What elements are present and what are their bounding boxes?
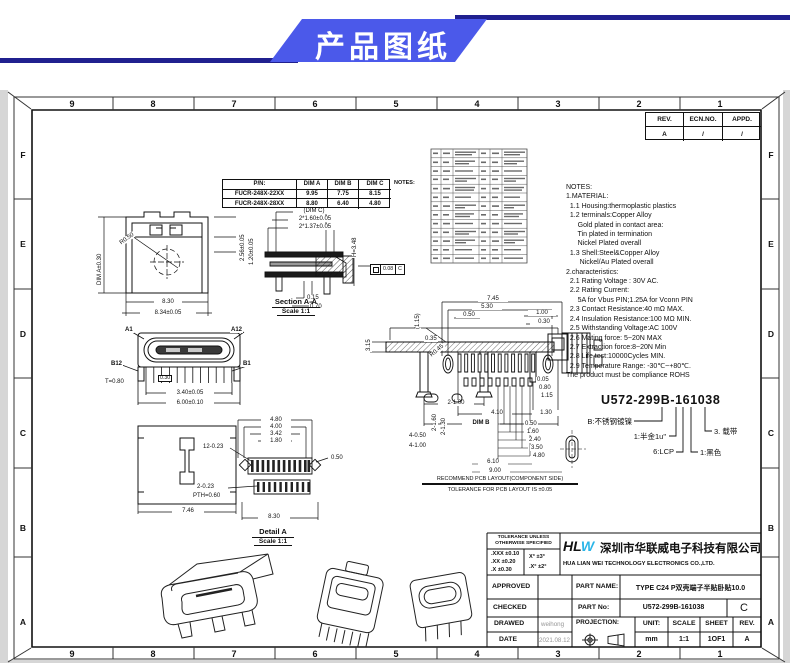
dim-pcb-115p: (1.15) xyxy=(415,312,421,330)
zone-row-left: A xyxy=(16,617,30,627)
dim-pcb-005: 0.05 xyxy=(536,377,550,383)
tolerance-deg2: .X° ±2° xyxy=(529,564,547,570)
part-rev-letter: C xyxy=(727,602,761,614)
dim-detail-t3: 3.42 xyxy=(261,431,291,437)
company-logo: HLW xyxy=(563,538,594,554)
pcb-side-strip-drawing xyxy=(552,328,612,388)
logo-w: W xyxy=(581,538,594,554)
dim-front-w1: 8.30 xyxy=(154,299,182,305)
pcb-pad-detail-drawing xyxy=(552,428,612,478)
dim-b-header: DIM B xyxy=(328,180,359,190)
pin-label-a12: A12 xyxy=(230,327,243,333)
dim-pcb-b240: 2.40 xyxy=(528,437,542,443)
callout-lcp: 6:LCP xyxy=(638,447,674,456)
rev-value: A xyxy=(733,636,761,643)
pin-label-b12: B12 xyxy=(110,361,123,367)
ecn-header: ECN.NO. xyxy=(684,113,723,127)
face-view-drawing xyxy=(108,325,258,423)
scale-label: SCALE xyxy=(668,620,700,627)
pn-cell: 8.15 xyxy=(359,190,391,200)
dim-detail-t2: 4.00 xyxy=(261,424,291,430)
gdt-datum: C xyxy=(396,265,404,274)
pcb-caption: RECOMMEND PCB LAYOUT(COMPONENT SIDE) xyxy=(422,476,578,485)
unit-value: mm xyxy=(635,636,668,643)
dim-section-c: (DIM C) xyxy=(293,208,335,214)
pcb-tolerance-note: TOLERANCE FOR PCB LAYOUT IS ±0.05 xyxy=(422,487,578,493)
callout-tape: 3. 载带 xyxy=(714,426,737,437)
gdt-symbol-icon xyxy=(371,265,381,274)
dim-pcb-900: 9.00 xyxy=(480,468,510,474)
zone-col-top: 4 xyxy=(467,99,487,109)
dim-top-746: 7.46 xyxy=(172,508,204,514)
dim-section-2: 2*1.37±0.05 xyxy=(288,224,342,230)
dim-detail-t4: 1.80 xyxy=(261,438,291,444)
dim-detail-t1: 4.80 xyxy=(261,417,291,423)
dim-pcb-530: 5.30 xyxy=(472,304,502,310)
dim-face-600: 6.00±0.10 xyxy=(166,400,214,406)
pn-header: P/N: xyxy=(223,180,297,190)
pn-cell: 7.75 xyxy=(328,190,359,200)
section-scale: Scale 1:1 xyxy=(277,308,315,316)
dim-pcb-100: 1.00 xyxy=(528,310,556,316)
zone-row-right: F xyxy=(764,150,778,160)
zone-col-top: 9 xyxy=(62,99,82,109)
zone-row-left: E xyxy=(16,239,30,249)
projection-label: PROJECTION: xyxy=(576,619,619,626)
dim-side-315: 3.15 xyxy=(366,338,372,352)
dim-front-a: DIM A±0.30 xyxy=(97,253,103,286)
part-no-value: U572-299B-161038 xyxy=(620,604,727,611)
logo-hl: HL xyxy=(563,538,581,554)
gdt-value: 0.08 xyxy=(381,265,396,274)
zone-row-right: A xyxy=(764,617,778,627)
part-name-label: PART NAME: xyxy=(576,583,618,590)
pn-cell: 9.95 xyxy=(297,190,328,200)
dim-pcb-115: 1.15 xyxy=(540,393,554,399)
ecn-value: / xyxy=(684,127,723,141)
sheet-label: SHEET xyxy=(700,620,733,627)
dim-pcb-745: 7.45 xyxy=(478,296,508,302)
dim-face-340: 3.40±0.05 xyxy=(166,390,214,396)
dim-pcb-050t: 0.50 xyxy=(456,312,482,318)
zone-col-bottom: 2 xyxy=(629,649,649,659)
dim-c-header: DIM C xyxy=(359,180,391,190)
product-drawing-screenshot: { "banner": {"title": "产品图纸"}, "zones": … xyxy=(0,0,790,663)
callout-gold: 1:半金1u" xyxy=(612,431,666,442)
dim-pcb-080: 0.80 xyxy=(538,385,552,391)
dim-face-t: T=0.80 xyxy=(104,379,125,385)
section-caption: Section A-A xyxy=(272,298,320,308)
isometric-views-drawing xyxy=(142,546,487,660)
drawed-value: weihong xyxy=(541,621,564,628)
dim-pcb-b480: 4.80 xyxy=(532,453,546,459)
dim-pcb-4050: 4-0.50 xyxy=(408,433,427,439)
zone-row-left: B xyxy=(16,523,30,533)
part-no-label: PART No: xyxy=(578,604,609,611)
appd-header: APPD. xyxy=(723,113,761,127)
drawed-label: DRAWED xyxy=(494,620,524,627)
tolerance-xxx: .XXX ±0.10 xyxy=(491,551,519,557)
dim-detail-050: 0.50 xyxy=(330,455,344,461)
dim-face-030: 0.30 xyxy=(158,375,172,382)
callout-black: 1:黑色 xyxy=(700,447,721,458)
dim-pcb-610: 6.10 xyxy=(478,459,508,465)
zone-col-bottom: 1 xyxy=(710,649,730,659)
dim-pcb-b160: 1.60 xyxy=(526,429,540,435)
zone-row-right: B xyxy=(764,523,778,533)
scale-value: 1:1 xyxy=(668,636,700,643)
dim-pcb-2130: 2-1.30 xyxy=(441,417,447,436)
dim-a-header: DIM A xyxy=(297,180,328,190)
date-value: 2021.08.12 xyxy=(539,637,570,644)
dim-front-w2: 8.34±0.05 xyxy=(140,310,196,316)
gdt-frame: 0.08 C xyxy=(370,264,405,275)
rev-header: REV. xyxy=(646,113,684,127)
dim-section-h: H=3.48 xyxy=(352,236,358,258)
detail-caption: Detail A xyxy=(252,528,294,538)
zone-col-top: 3 xyxy=(548,99,568,109)
dim-pcb-030: 0.30 xyxy=(530,319,558,325)
zone-col-bottom: 3 xyxy=(548,649,568,659)
revision-table: REV. ECN.NO. APPD. A / / xyxy=(645,112,760,140)
appd-value: / xyxy=(723,127,761,141)
date-label: DATE xyxy=(499,636,517,643)
zone-row-right: C xyxy=(764,428,778,438)
zone-col-top: 8 xyxy=(143,99,163,109)
zone-row-left: F xyxy=(16,150,30,160)
zone-row-left: D xyxy=(16,329,30,339)
dim-pcb-035: 0.35 xyxy=(424,336,438,342)
tolerance-deg3: X° ±3° xyxy=(529,554,545,560)
dim-pcb-b350: 3.50 xyxy=(530,445,544,451)
dim-pcb-b050: 0.50 xyxy=(524,421,538,427)
dim-detail-223: 2-0.23 xyxy=(196,484,215,490)
zone-col-top: 7 xyxy=(224,99,244,109)
dim-section-1: 2*1.60±0.05 xyxy=(288,216,342,222)
rev-label: REV. xyxy=(733,620,761,627)
dim-detail-1223: 12-0.23 xyxy=(202,444,224,450)
dim-detail-pth: PTH=0.60 xyxy=(192,493,221,499)
dim-pcb-2160: 2-1.60 xyxy=(432,413,438,432)
unit-label: UNIT: xyxy=(635,620,668,627)
pin-label-b1: B1 xyxy=(242,361,252,367)
rev-value: A xyxy=(646,127,684,141)
tolerance-xx: .XX ±0.20 xyxy=(491,559,516,565)
pin-assignment-table xyxy=(430,148,528,264)
projection-symbol-icon xyxy=(578,633,632,647)
pin-label-a1: A1 xyxy=(124,327,134,333)
approved-label: APPROVED xyxy=(492,583,530,590)
company-name-cn: 深圳市华联威电子科技有限公司 xyxy=(600,540,761,556)
tolerance-header: TOLERANCE UNLESS OTHERWISE SPECIFIED xyxy=(488,535,559,548)
zone-col-top: 1 xyxy=(710,99,730,109)
dim-pcb-4100: 4-1.00 xyxy=(408,443,427,449)
zone-col-top: 6 xyxy=(305,99,325,109)
part-name-value: TYPE C24 P双壳端子半贴卧贴10.0 xyxy=(620,583,761,593)
dim-detail-830: 8.30 xyxy=(258,514,290,520)
sheet-value: 1OF1 xyxy=(700,636,733,643)
company-name-en: HUA LIAN WEI TECHNOLOGY ELECTRONICS CO.,… xyxy=(563,561,715,567)
pn-table-notes-label: NOTES: xyxy=(394,180,415,186)
checked-label: CHECKED xyxy=(493,604,527,611)
zone-col-top: 2 xyxy=(629,99,649,109)
tolerance-x: .X ±0.30 xyxy=(491,567,512,573)
zone-col-top: 5 xyxy=(386,99,406,109)
zone-row-left: C xyxy=(16,428,30,438)
zone-col-bottom: 9 xyxy=(62,649,82,659)
